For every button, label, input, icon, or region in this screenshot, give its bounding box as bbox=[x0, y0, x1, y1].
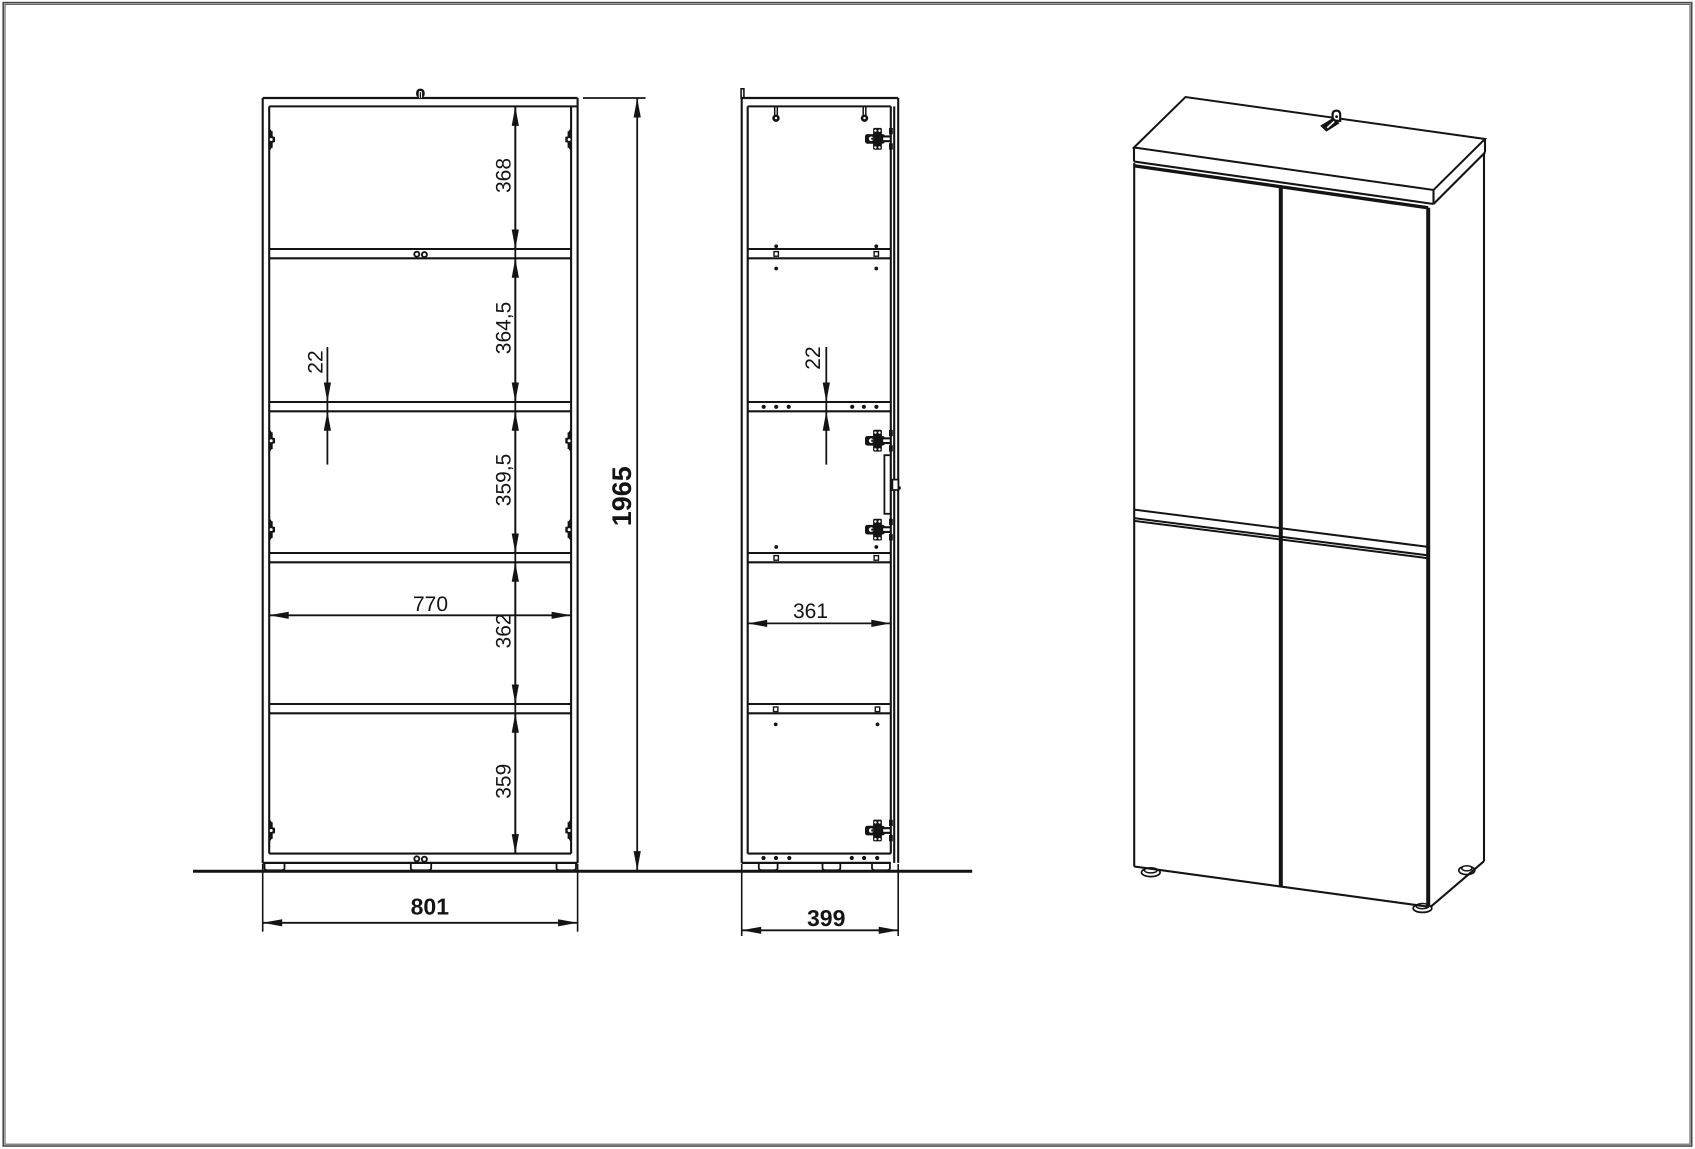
svg-text:362: 362 bbox=[493, 613, 516, 648]
svg-text:368: 368 bbox=[493, 158, 516, 193]
svg-text:359,5: 359,5 bbox=[493, 454, 516, 507]
svg-text:1965: 1965 bbox=[607, 466, 637, 526]
svg-text:770: 770 bbox=[413, 593, 448, 616]
svg-text:359: 359 bbox=[493, 764, 516, 799]
svg-text:399: 399 bbox=[807, 905, 845, 931]
svg-text:22: 22 bbox=[305, 350, 328, 373]
svg-text:364,5: 364,5 bbox=[493, 302, 516, 355]
svg-text:22: 22 bbox=[802, 346, 825, 369]
svg-text:361: 361 bbox=[793, 600, 828, 623]
svg-text:801: 801 bbox=[411, 894, 450, 920]
